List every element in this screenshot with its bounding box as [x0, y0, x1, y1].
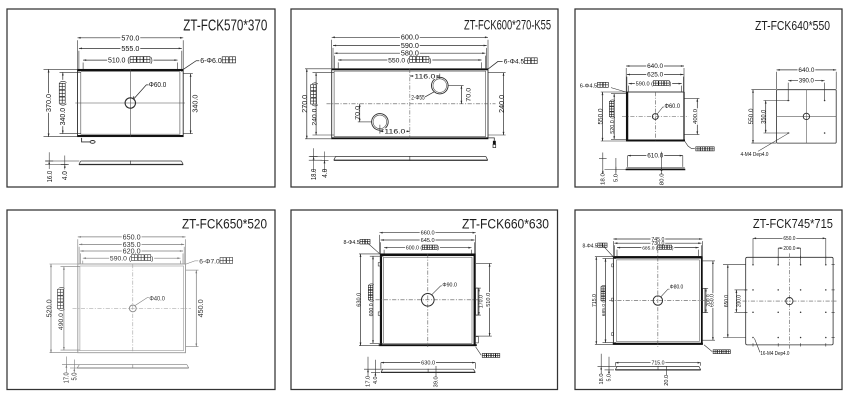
svg-text:5.0: 5.0 — [72, 372, 79, 380]
svg-text:685.0 (: 685.0 ( — [642, 245, 658, 251]
svg-text:): ) — [311, 82, 318, 84]
svg-text:600.0: 600.0 — [401, 35, 419, 42]
svg-text:5.0: 5.0 — [607, 374, 613, 382]
svg-text:17.0: 17.0 — [366, 376, 372, 387]
svg-text:170.0: 170.0 — [478, 295, 484, 308]
svg-text:): ) — [437, 245, 439, 251]
svg-text:70.0: 70.0 — [354, 106, 361, 120]
svg-text:116.0: 116.0 — [414, 73, 435, 80]
svg-text:240.0 (: 240.0 ( — [311, 104, 318, 126]
svg-text:4.0: 4.0 — [320, 169, 329, 178]
svg-text:18.0: 18.0 — [601, 173, 607, 185]
svg-text:): ) — [429, 57, 431, 64]
svg-text:490.0 (: 490.0 ( — [58, 308, 65, 330]
svg-text:): ) — [610, 99, 616, 101]
svg-text:510.0 (: 510.0 ( — [108, 57, 130, 64]
svg-text:200.0: 200.0 — [783, 246, 795, 252]
svg-text:8-Φ4.5: 8-Φ4.5 — [582, 243, 597, 249]
svg-text:650.0: 650.0 — [783, 236, 795, 242]
svg-text:550.0: 550.0 — [598, 108, 605, 125]
svg-text:640.0: 640.0 — [647, 63, 664, 70]
svg-text:ZT-FCK570*370: ZT-FCK570*370 — [183, 18, 267, 35]
svg-text:6-Φ4.5: 6-Φ4.5 — [580, 83, 597, 89]
svg-text:16.0: 16.0 — [45, 171, 54, 183]
svg-text:390.0: 390.0 — [799, 79, 815, 85]
svg-text:Φ80.0: Φ80.0 — [670, 284, 684, 290]
svg-text:510.0: 510.0 — [486, 293, 492, 307]
svg-text:ZT-FCK640*550: ZT-FCK640*550 — [755, 18, 830, 33]
svg-text:370.0: 370.0 — [44, 94, 53, 112]
svg-text:6-Φ7.0: 6-Φ7.0 — [199, 258, 220, 265]
svg-text:80.0: 80.0 — [659, 173, 665, 185]
svg-text:650.0: 650.0 — [709, 294, 715, 307]
svg-text:17.0: 17.0 — [64, 372, 71, 383]
svg-text:Φ90.0: Φ90.0 — [442, 283, 457, 289]
svg-text:39.0: 39.0 — [434, 376, 440, 387]
svg-text:550.0: 550.0 — [749, 108, 755, 125]
svg-text:520.0 (: 520.0 ( — [610, 117, 616, 134]
svg-text:625.0: 625.0 — [647, 72, 664, 79]
svg-text:ZT-FCK600*270-K55: ZT-FCK600*270-K55 — [464, 18, 551, 33]
svg-text:4-M4 Dep4.0: 4-M4 Dep4.0 — [741, 152, 769, 158]
svg-text:685.0 (: 685.0 ( — [601, 301, 607, 317]
svg-text:555.0: 555.0 — [121, 44, 139, 53]
svg-text:715.0: 715.0 — [592, 294, 598, 307]
svg-text:600.0 (: 600.0 ( — [369, 300, 375, 316]
svg-text:): ) — [60, 81, 67, 83]
svg-text:715.0: 715.0 — [652, 360, 665, 366]
svg-text:4.0: 4.0 — [373, 376, 379, 384]
svg-text:4.0: 4.0 — [60, 171, 69, 180]
svg-text:600.0 (: 600.0 ( — [406, 245, 422, 251]
svg-text:): ) — [151, 256, 153, 263]
svg-text:18.0: 18.0 — [309, 169, 318, 181]
svg-text:650.0: 650.0 — [123, 234, 141, 241]
svg-text:Φ60.0: Φ60.0 — [149, 80, 167, 89]
svg-text:400.0: 400.0 — [693, 109, 699, 124]
svg-text:270.0: 270.0 — [302, 95, 309, 113]
svg-text:450.0: 450.0 — [198, 299, 205, 317]
svg-text:): ) — [670, 82, 672, 88]
svg-text:570.0: 570.0 — [121, 33, 139, 42]
svg-text:340.0 (: 340.0 ( — [60, 103, 67, 125]
svg-text:ZT-FCK745*715: ZT-FCK745*715 — [753, 216, 833, 231]
svg-text:340.0: 340.0 — [190, 95, 199, 113]
svg-text:): ) — [150, 57, 152, 64]
svg-text:20.0: 20.0 — [664, 375, 670, 386]
svg-text:590.0: 590.0 — [401, 43, 419, 50]
svg-text:116.0: 116.0 — [384, 129, 405, 136]
svg-text:550.0 (: 550.0 ( — [388, 57, 410, 64]
svg-text:630.0: 630.0 — [421, 361, 435, 367]
svg-text:18.0: 18.0 — [599, 373, 605, 384]
svg-text:Φ40.0: Φ40.0 — [149, 295, 165, 302]
svg-text:660.0: 660.0 — [421, 231, 435, 237]
svg-text:8-Φ4.5: 8-Φ4.5 — [343, 240, 359, 246]
svg-text:650.0: 650.0 — [724, 295, 730, 307]
svg-text:): ) — [369, 283, 375, 285]
svg-text:620.0: 620.0 — [123, 248, 141, 255]
svg-text:645.0: 645.0 — [421, 238, 435, 244]
svg-text:2-Φ55: 2-Φ55 — [411, 95, 425, 102]
svg-text:5.0: 5.0 — [614, 174, 620, 182]
svg-text:Φ60.0: Φ60.0 — [665, 104, 681, 110]
svg-text:520.0: 520.0 — [46, 299, 53, 317]
svg-text:70.0: 70.0 — [466, 87, 473, 101]
svg-text:640.0: 640.0 — [798, 68, 815, 74]
svg-text:16-M4 Dep4.0: 16-M4 Dep4.0 — [760, 351, 789, 357]
svg-text:350.0: 350.0 — [762, 109, 768, 124]
svg-text:200.0: 200.0 — [736, 295, 742, 307]
svg-text:630.0: 630.0 — [356, 293, 362, 307]
svg-text:): ) — [58, 287, 65, 289]
svg-text:ZT-FCK660*630: ZT-FCK660*630 — [462, 216, 549, 231]
svg-text:590.0 (: 590.0 ( — [636, 82, 654, 88]
svg-text:6-Φ6.0: 6-Φ6.0 — [200, 56, 222, 65]
svg-text:ZT-FCK650*520: ZT-FCK650*520 — [182, 217, 267, 232]
svg-text:590.0 (: 590.0 ( — [110, 256, 132, 263]
svg-text:6-Φ4.5: 6-Φ4.5 — [504, 59, 525, 66]
svg-text:240.0: 240.0 — [499, 95, 506, 113]
